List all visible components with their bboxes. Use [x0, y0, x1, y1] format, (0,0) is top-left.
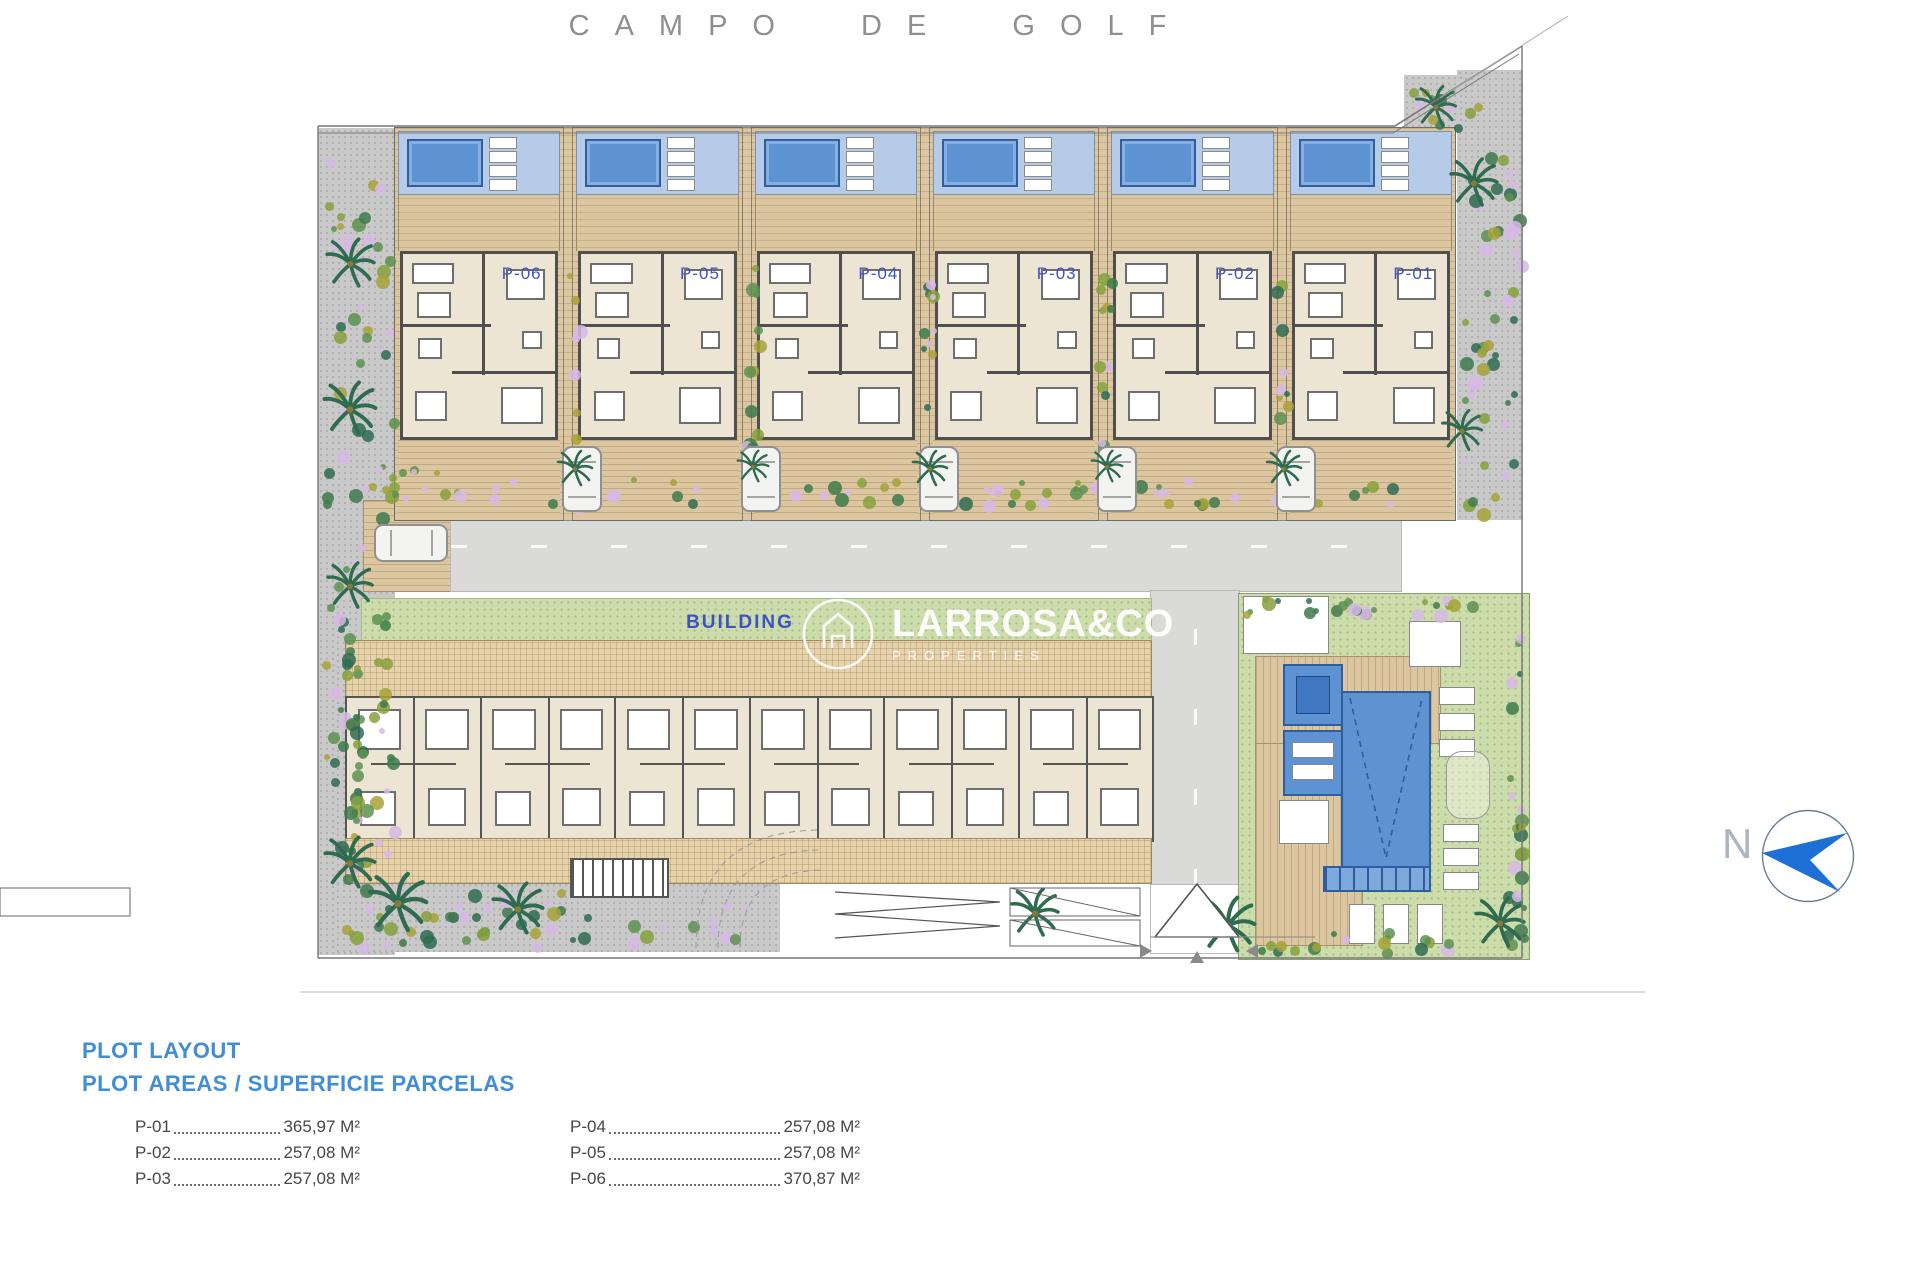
vegetation-dot	[628, 937, 641, 950]
vegetation-dot	[1230, 493, 1240, 503]
palm-tree-icon	[735, 448, 771, 484]
legend-plot-area: 257,08 M²	[283, 1169, 360, 1189]
legend-plot-id: P-05	[570, 1143, 606, 1163]
vegetation-dot	[746, 283, 760, 297]
vegetation-dot	[472, 913, 481, 922]
vegetation-dot	[983, 500, 996, 513]
legend-plot-area: 365,97 M²	[283, 1117, 360, 1137]
vegetation-dot	[1460, 357, 1474, 371]
vegetation-dot	[369, 483, 377, 491]
vegetation-dot	[857, 478, 867, 488]
vegetation-dot	[1362, 487, 1369, 494]
sun-lounger	[1443, 848, 1479, 866]
planter	[1279, 800, 1329, 844]
vegetation-dot	[377, 466, 383, 472]
vegetation-dot	[342, 653, 356, 667]
vegetation-dot	[546, 924, 558, 936]
vegetation-dot	[1462, 319, 1469, 326]
vegetation-dot	[422, 486, 428, 492]
legend-plot-area: 257,08 M²	[283, 1143, 360, 1163]
vegetation-dot	[381, 658, 393, 670]
vegetation-dot	[659, 925, 665, 931]
vegetation-dot	[1019, 480, 1025, 486]
vegetation-dot	[369, 712, 380, 723]
plot-deck	[755, 195, 917, 251]
vegetation-dot	[1467, 378, 1479, 390]
vegetation-dot	[337, 451, 350, 464]
vegetation-dot	[1433, 602, 1440, 609]
plot-driveway	[398, 440, 560, 518]
vegetation-dot	[380, 700, 388, 708]
vegetation-dot	[462, 936, 471, 945]
legend-plot-id: P-03	[135, 1169, 171, 1189]
vegetation-dot	[1484, 290, 1491, 297]
building-units	[345, 696, 1154, 842]
vegetation-dot	[1508, 792, 1516, 800]
plot-deck	[933, 195, 1095, 251]
vegetation-dot	[331, 778, 340, 787]
vegetation-dot	[1348, 603, 1361, 616]
building-bottom-terrace	[345, 838, 1152, 884]
watermark-subtitle: PROPERTIES	[892, 648, 1174, 663]
palm-tree-icon	[1089, 448, 1125, 484]
vegetation-dot	[379, 728, 385, 734]
vegetation-dot	[1505, 193, 1514, 202]
pool-water	[764, 139, 840, 187]
dotted-leader	[174, 1184, 281, 1186]
vegetation-dot	[399, 939, 407, 947]
pool-water	[407, 139, 483, 187]
vegetation-dot	[931, 328, 937, 334]
vegetation-dot	[574, 325, 588, 339]
plot: P-05	[573, 128, 741, 520]
vegetation-dot	[1284, 391, 1290, 397]
vegetation-dot	[567, 273, 573, 279]
vegetation-dot	[1107, 278, 1118, 289]
vegetation-dot	[440, 489, 451, 500]
vegetation-dot	[384, 850, 392, 858]
dotted-leader	[609, 1184, 781, 1186]
sun-lounger	[1439, 713, 1475, 731]
vegetation-dot	[570, 937, 576, 943]
vegetation-dot	[1094, 361, 1106, 373]
vegetation-dot	[1477, 508, 1491, 522]
vegetation-dot	[376, 275, 390, 289]
vegetation-dot	[820, 491, 829, 500]
palm-tree-icon	[324, 559, 376, 611]
vegetation-dot	[1387, 483, 1399, 495]
vegetation-dot	[1412, 609, 1424, 621]
vegetation-dot	[1042, 488, 1052, 498]
legend-row: P-05 257,08 M²	[570, 1143, 860, 1163]
vegetation-dot	[1444, 939, 1454, 949]
legend-plot-id: P-02	[135, 1143, 171, 1163]
vegetation-dot	[1387, 501, 1394, 508]
vegetation-dot	[392, 491, 399, 498]
palm-tree-icon	[1008, 885, 1062, 939]
vegetation-dot	[1516, 260, 1529, 273]
pool-loungers	[489, 137, 517, 191]
vegetation-dot	[387, 754, 395, 762]
legend-row: P-04 257,08 M²	[570, 1117, 860, 1137]
building-unit	[616, 698, 751, 840]
vegetation-dot	[384, 788, 390, 794]
vegetation-dot	[640, 930, 654, 944]
plot-deck	[1111, 195, 1273, 251]
vegetation-dot	[1107, 305, 1115, 313]
vegetation-dot	[571, 296, 580, 305]
sun-lounger	[1349, 904, 1375, 944]
dotted-leader	[609, 1158, 781, 1160]
vegetation-dot	[892, 478, 901, 487]
vegetation-dot	[1243, 611, 1251, 619]
vegetation-dot	[1010, 489, 1021, 500]
vegetation-dot	[338, 741, 349, 752]
plot-label: P-04	[858, 264, 898, 284]
vegetation-dot	[991, 484, 1004, 497]
vegetation-dot	[1516, 847, 1530, 861]
vegetation-dot	[693, 486, 700, 493]
jacuzzi	[1283, 664, 1343, 726]
vegetation-dot	[385, 329, 394, 338]
legend-plot-area: 257,08 M²	[783, 1117, 860, 1137]
legend-plot-id: P-06	[570, 1169, 606, 1189]
plot-house-floorplan: P-05	[578, 251, 736, 440]
vegetation-dot	[356, 359, 365, 368]
vegetation-dot	[709, 919, 717, 927]
vegetation-dot	[353, 817, 360, 824]
vegetation-dot	[355, 762, 363, 770]
legend-plot-area: 257,08 M²	[783, 1143, 860, 1163]
vegetation-dot	[337, 213, 345, 221]
vegetation-dot	[924, 404, 931, 411]
sun-lounger	[1439, 687, 1475, 705]
vegetation-dot	[350, 931, 364, 945]
vegetation-dot	[322, 492, 334, 504]
vegetation-dot	[468, 889, 482, 903]
vegetation-dot	[358, 544, 366, 552]
vegetation-dot	[342, 670, 353, 681]
vegetation-dot	[1492, 352, 1499, 359]
vegetation-dot	[1038, 498, 1049, 509]
vegetation-dot	[324, 754, 330, 760]
plot-pool	[398, 131, 560, 195]
vegetation-dot	[533, 943, 543, 953]
vegetation-dot	[1101, 391, 1110, 400]
vegetation-dot	[385, 256, 396, 267]
building-unit	[347, 698, 482, 840]
vegetation-dot	[1164, 490, 1170, 496]
vegetation-dot	[892, 494, 904, 506]
vegetation-dot	[326, 158, 336, 168]
plot-house-floorplan: P-03	[935, 251, 1093, 440]
main-pool	[1341, 691, 1431, 870]
pool-loungers	[667, 137, 695, 191]
vegetation-dot	[1342, 936, 1350, 944]
vegetation-dot	[351, 796, 365, 810]
vegetation-dot	[352, 770, 364, 782]
vegetation-dot	[921, 346, 927, 352]
vegetation-dot	[1422, 599, 1428, 605]
car-icon	[374, 524, 448, 562]
vegetation-dot	[459, 912, 470, 923]
pool-loungers	[846, 137, 874, 191]
vegetation-dot	[389, 826, 402, 839]
palm-tree-icon	[1413, 83, 1459, 129]
vegetation-dot	[1518, 823, 1526, 831]
legend-table: P-01 365,97 M² P-02 257,08 M² P-03 257,0…	[135, 1117, 902, 1189]
vegetation-dot	[1477, 363, 1490, 376]
vegetation-dot	[1506, 677, 1518, 689]
plot-label: P-02	[1215, 264, 1255, 284]
vegetation-dot	[710, 927, 719, 936]
pool-water	[1299, 139, 1375, 187]
vegetation-dot	[328, 687, 341, 700]
vegetation-dot	[1515, 871, 1529, 885]
plot-pool	[576, 131, 738, 195]
vegetation-dot	[926, 280, 936, 290]
vegetation-dot	[1331, 931, 1337, 937]
vegetation-dot	[381, 350, 391, 360]
sun-lounger	[1443, 872, 1479, 890]
vegetation-dot	[1164, 499, 1174, 509]
vegetation-dot	[804, 484, 813, 493]
vegetation-dot	[1502, 472, 1510, 480]
vegetation-dot	[743, 906, 749, 912]
vegetation-dot	[880, 483, 889, 492]
pool-loungers	[1024, 137, 1052, 191]
palm-tree-icon	[489, 879, 547, 937]
vegetation-dot	[1075, 480, 1081, 486]
vegetation-dot	[1415, 943, 1428, 956]
vegetation-dot	[1508, 221, 1522, 235]
legend-row: P-06 370,87 M²	[570, 1169, 860, 1189]
vegetation-dot	[569, 369, 581, 381]
plot-house-floorplan: P-02	[1113, 251, 1271, 440]
vegetation-dot	[1462, 458, 1468, 464]
vegetation-dot	[1511, 391, 1518, 398]
pool-water	[1120, 139, 1196, 187]
vegetation-dot	[1474, 103, 1483, 112]
pool-water	[585, 139, 661, 187]
vegetation-dot	[1512, 249, 1522, 259]
vegetation-dot	[359, 212, 371, 224]
legend-column: P-01 365,97 M² P-02 257,08 M² P-03 257,0…	[135, 1117, 360, 1189]
vegetation-dot	[1266, 941, 1276, 951]
vegetation-dot	[1467, 391, 1475, 399]
vegetation-dot	[1448, 599, 1461, 612]
vegetation-dot	[492, 484, 500, 492]
vegetation-dot	[354, 665, 361, 672]
vegetation-dot	[959, 497, 973, 511]
palm-tree-icon	[320, 378, 380, 438]
vegetation-dot	[1502, 295, 1514, 307]
vegetation-dot	[1501, 422, 1508, 429]
lounger-platform	[1283, 730, 1343, 796]
palm-tree-icon	[555, 448, 595, 488]
vegetation-dot	[1274, 412, 1287, 425]
plot-deck	[398, 195, 560, 251]
vegetation-dot	[927, 341, 933, 347]
plot-house-floorplan: P-01	[1292, 251, 1450, 440]
vegetation-dot	[835, 493, 849, 507]
legend-subtitle: PLOT AREAS / SUPERFICIE PARCELAS	[82, 1071, 902, 1097]
pool-loungers	[1381, 137, 1409, 191]
vegetation-dot	[344, 633, 356, 645]
vegetation-dot	[1290, 946, 1300, 956]
vegetation-dot	[1070, 487, 1083, 500]
vegetation-dot	[1483, 340, 1494, 351]
plot-label: P-06	[502, 264, 542, 284]
vegetation-dot	[670, 479, 677, 486]
vegetation-dot	[383, 942, 391, 950]
watermark: LARROSA&CO PROPERTIES	[800, 596, 1174, 672]
plot-house-floorplan: P-04	[757, 251, 915, 440]
vegetation-dot	[350, 726, 364, 740]
vegetation-dot	[745, 405, 758, 418]
planter-top	[1409, 621, 1461, 667]
vegetation-dot	[754, 340, 767, 353]
legend-row: P-01 365,97 M²	[135, 1117, 360, 1137]
vegetation-dot	[571, 434, 582, 445]
building-unit	[751, 698, 886, 840]
vegetation-dot	[1506, 702, 1519, 715]
vegetation-dot	[688, 921, 700, 933]
dotted-leader	[174, 1158, 281, 1160]
vegetation-dot	[1507, 775, 1514, 782]
vegetation-dot	[1378, 937, 1391, 950]
plot-label: P-01	[1393, 264, 1433, 284]
vegetation-dot	[1479, 244, 1492, 257]
plot-deck	[576, 195, 738, 251]
vegetation-dot	[434, 470, 440, 476]
vegetation-dot	[1262, 596, 1269, 603]
vegetation-dot	[324, 468, 335, 479]
site-plan-canvas: CAMPO DE GOLF P-06	[0, 0, 1920, 1280]
vegetation-dot	[348, 313, 361, 326]
plan-title: CAMPO DE GOLF	[520, 10, 1240, 43]
vegetation-dot	[337, 223, 344, 230]
legend-plot-id: P-04	[570, 1117, 606, 1137]
plot-label: P-05	[680, 264, 720, 284]
vegetation-dot	[325, 202, 334, 211]
north-label: N	[1722, 820, 1752, 868]
vegetation-dot	[790, 490, 802, 502]
legend-row: P-02 257,08 M²	[135, 1143, 360, 1163]
vegetation-dot	[573, 409, 581, 417]
plot: P-03	[930, 128, 1098, 520]
vegetation-dot	[1306, 598, 1312, 604]
vegetation-dot	[557, 889, 566, 898]
vegetation-dot	[403, 496, 409, 502]
vegetation-dot	[489, 494, 500, 505]
building-unit	[885, 698, 1020, 840]
vegetation-dot	[631, 477, 637, 483]
vegetation-dot	[724, 902, 732, 910]
vegetation-dot	[1480, 461, 1489, 470]
legend-title: PLOT LAYOUT	[82, 1038, 902, 1064]
plot-house-floorplan: P-06	[400, 251, 558, 440]
palm-tree-icon	[365, 869, 431, 935]
vegetation-dot	[1491, 493, 1500, 502]
vegetation-dot	[362, 333, 372, 343]
vegetation-dot	[330, 758, 340, 768]
plot-pool	[1111, 131, 1273, 195]
vegetation-dot	[322, 661, 331, 670]
palm-tree-icon	[1447, 155, 1501, 209]
vegetation-dot	[1096, 285, 1106, 295]
vegetation-dot	[578, 932, 591, 945]
vegetation-dot	[328, 732, 340, 744]
vegetation-dot	[1276, 388, 1284, 396]
vegetation-dot	[928, 350, 937, 359]
vegetation-dot	[1276, 324, 1289, 337]
dotted-leader	[609, 1132, 781, 1134]
vegetation-dot	[1517, 671, 1523, 677]
vegetation-dot	[548, 499, 558, 509]
plot: P-06	[395, 128, 563, 520]
vegetation-dot	[1434, 609, 1448, 623]
vegetation-dot	[1371, 607, 1377, 613]
vegetation-dot	[1025, 500, 1036, 511]
vegetation-dot	[1283, 401, 1294, 412]
plot-pool	[933, 131, 1095, 195]
sun-lounger	[1443, 824, 1479, 842]
legend-plot-area: 370,87 M²	[783, 1169, 860, 1189]
vegetation-dot	[349, 489, 363, 503]
pool-loungers	[1202, 137, 1230, 191]
palm-tree-icon	[1264, 448, 1304, 488]
vegetation-dot	[338, 626, 345, 633]
vegetation-dot	[744, 366, 756, 378]
vegetation-dot	[1468, 497, 1478, 507]
spa-outline	[1446, 751, 1490, 819]
legend-plot-id: P-01	[135, 1117, 171, 1137]
plot-deck	[1290, 195, 1452, 251]
vegetation-dot	[1279, 368, 1288, 377]
vegetation-dot	[1510, 316, 1518, 324]
vegetation-dot	[455, 903, 463, 911]
vegetation-dot	[454, 490, 467, 503]
vegetation-dot	[357, 304, 364, 311]
palm-tree-icon	[323, 235, 378, 290]
vegetation-dot	[1008, 500, 1016, 508]
vegetation-dot	[930, 294, 936, 300]
vegetation-dot	[863, 496, 876, 509]
dotted-leader	[174, 1132, 281, 1134]
vegetation-dot	[607, 489, 621, 503]
vegetation-dot	[375, 183, 386, 194]
vegetation-dot	[1209, 497, 1220, 508]
vegetation-dot	[379, 688, 392, 701]
vegetation-dot	[1156, 484, 1162, 490]
vegetation-dot	[1313, 608, 1319, 614]
vegetation-dot	[1271, 286, 1284, 299]
vegetation-dot	[752, 429, 764, 441]
pool-lane-lines	[1343, 693, 1429, 868]
plot: P-01	[1287, 128, 1455, 520]
vegetation-dot	[510, 479, 517, 486]
vegetation-dot	[754, 326, 763, 335]
plot: P-04	[752, 128, 920, 520]
vegetation-dot	[353, 740, 362, 749]
watermark-name: LARROSA&CO	[892, 605, 1174, 643]
vegetation-dot	[1184, 477, 1193, 486]
north-arrow-icon	[1761, 809, 1855, 903]
vegetation-dot	[334, 331, 347, 344]
vegetation-dot	[752, 265, 759, 272]
vegetation-dot	[1505, 400, 1511, 406]
